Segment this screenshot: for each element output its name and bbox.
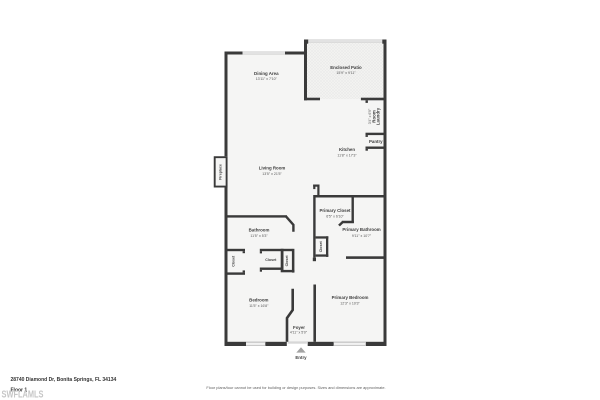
svg-text:9'11" x 10'7": 9'11" x 10'7"	[352, 234, 372, 238]
svg-text:6'5" x 6'10": 6'5" x 6'10"	[326, 215, 344, 219]
svg-text:11'5" x 16'8": 11'5" x 16'8"	[249, 304, 269, 308]
svg-text:13'11" x 7'10": 13'11" x 7'10"	[256, 77, 278, 81]
svg-text:Living Room: Living Room	[259, 165, 286, 170]
svg-text:28740 Diamond Dr, Bonita Sprin: 28740 Diamond Dr, Bonita Springs, FL 341…	[11, 377, 117, 383]
svg-text:Enclosed Patio: Enclosed Patio	[330, 65, 362, 70]
svg-text:Entry: Entry	[295, 355, 307, 360]
svg-text:Kitchen: Kitchen	[339, 147, 355, 152]
svg-text:Foyer: Foyer	[293, 325, 305, 330]
svg-text:12'3" x 10'3": 12'3" x 10'3"	[340, 302, 360, 306]
svg-text:4'11" x 5'0": 4'11" x 5'0"	[290, 331, 308, 335]
svg-text:11'5" x 5'3": 11'5" x 5'3"	[250, 234, 268, 238]
svg-text:Closet: Closet	[265, 258, 277, 262]
svg-text:Primary Closet: Primary Closet	[320, 208, 352, 213]
svg-text:Bathroom: Bathroom	[249, 227, 270, 232]
svg-text:Laundry: Laundry	[376, 107, 381, 125]
svg-text:13'5" x 21'5": 13'5" x 21'5"	[262, 172, 282, 176]
svg-text:Closet: Closet	[285, 255, 289, 267]
svg-text:15'9" x 9'11": 15'9" x 9'11"	[336, 71, 356, 75]
svg-text:Floor plans/tour cannot be use: Floor plans/tour cannot be used for buil…	[206, 385, 385, 390]
svg-text:Bedroom: Bedroom	[249, 297, 268, 302]
svg-text:SWFLAMLS: SWFLAMLS	[2, 390, 44, 400]
svg-text:Primary Bedroom: Primary Bedroom	[332, 295, 369, 300]
svg-text:11'8" x 17'3": 11'8" x 17'3"	[337, 153, 357, 157]
svg-text:Dining Area: Dining Area	[254, 71, 279, 76]
svg-text:Pantry: Pantry	[369, 139, 383, 144]
svg-text:Fireplace: Fireplace	[219, 164, 223, 180]
svg-text:Closet: Closet	[319, 241, 323, 253]
svg-text:Primary Bathroom: Primary Bathroom	[342, 227, 380, 232]
svg-text:Closet: Closet	[232, 255, 236, 267]
